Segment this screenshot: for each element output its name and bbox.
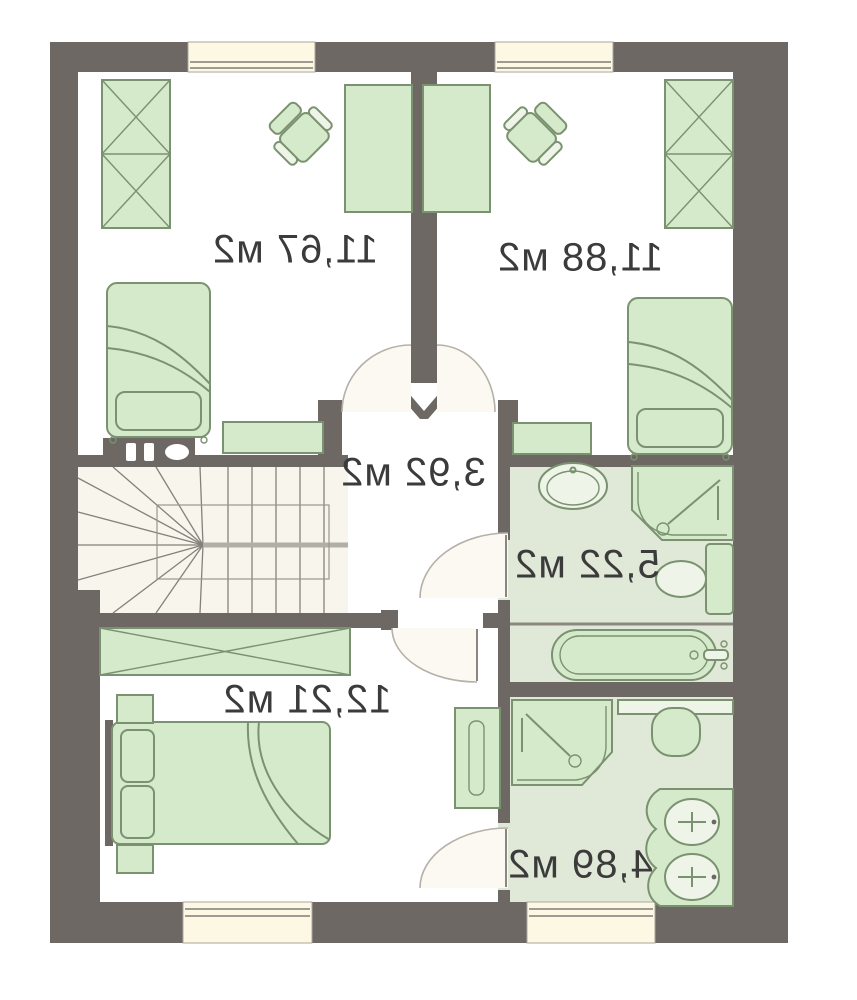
nightstand-icon [117,845,153,873]
wardrobe-icon [102,80,170,228]
dresser-icon [223,422,323,453]
room-label-bedroom-bottom: 12,21 м2 [223,678,392,723]
chair-icon [260,93,338,171]
room-label-bedroom-top-right: 11,88 м2 [497,236,663,281]
floor-plan: 11,67 м2 11,88 м2 3,92 м2 5,22 м2 12,21 … [0,0,857,1000]
room-label-hall: 3,92 м2 [340,451,486,496]
bathtub-icon [552,630,728,680]
wall-right [733,42,788,943]
wardrobe-icon [100,628,350,675]
sink-icon [539,463,607,509]
flue-mark [126,443,136,461]
door-bathroom-lower [420,828,508,888]
wall-left-lower [50,590,100,943]
floor-plan-drawing [0,0,857,1000]
nightstand-icon [117,695,153,723]
window-top-right [495,42,613,72]
window-top-left [188,42,315,72]
room-label-bathroom-lower: 4,89 м2 [507,843,653,888]
room-label-bedroom-top-left: 11,67 м2 [212,228,378,273]
bed-icon [628,298,732,460]
wardrobe-icon [665,80,733,228]
toilet-bidet-icon [646,789,733,906]
bedroom-bottom-furniture [100,628,350,873]
double-bed-icon [105,720,330,846]
door-hinge-stub [381,610,398,630]
door-bedroom-bottom [392,628,477,682]
desk-icon [423,85,490,212]
staircase-floor [78,455,348,628]
flue-oval [165,444,189,460]
room-label-bathroom-upper: 5,22 м2 [514,543,660,588]
wall-left-upper [50,42,78,600]
door-bedroom-top-right [437,345,495,412]
chair-icon [498,93,576,171]
window-bottom-right [527,902,655,943]
door-bathroom-upper [420,533,508,598]
desk-icon [345,85,412,212]
dresser-icon [513,423,591,454]
door-bedroom-top-left [342,345,411,412]
hall-cabinet-icon [455,708,500,808]
wall-between-bathrooms [498,682,733,697]
window-bottom-left [183,902,312,943]
bed-icon [107,283,210,443]
flue-mark [144,443,154,461]
